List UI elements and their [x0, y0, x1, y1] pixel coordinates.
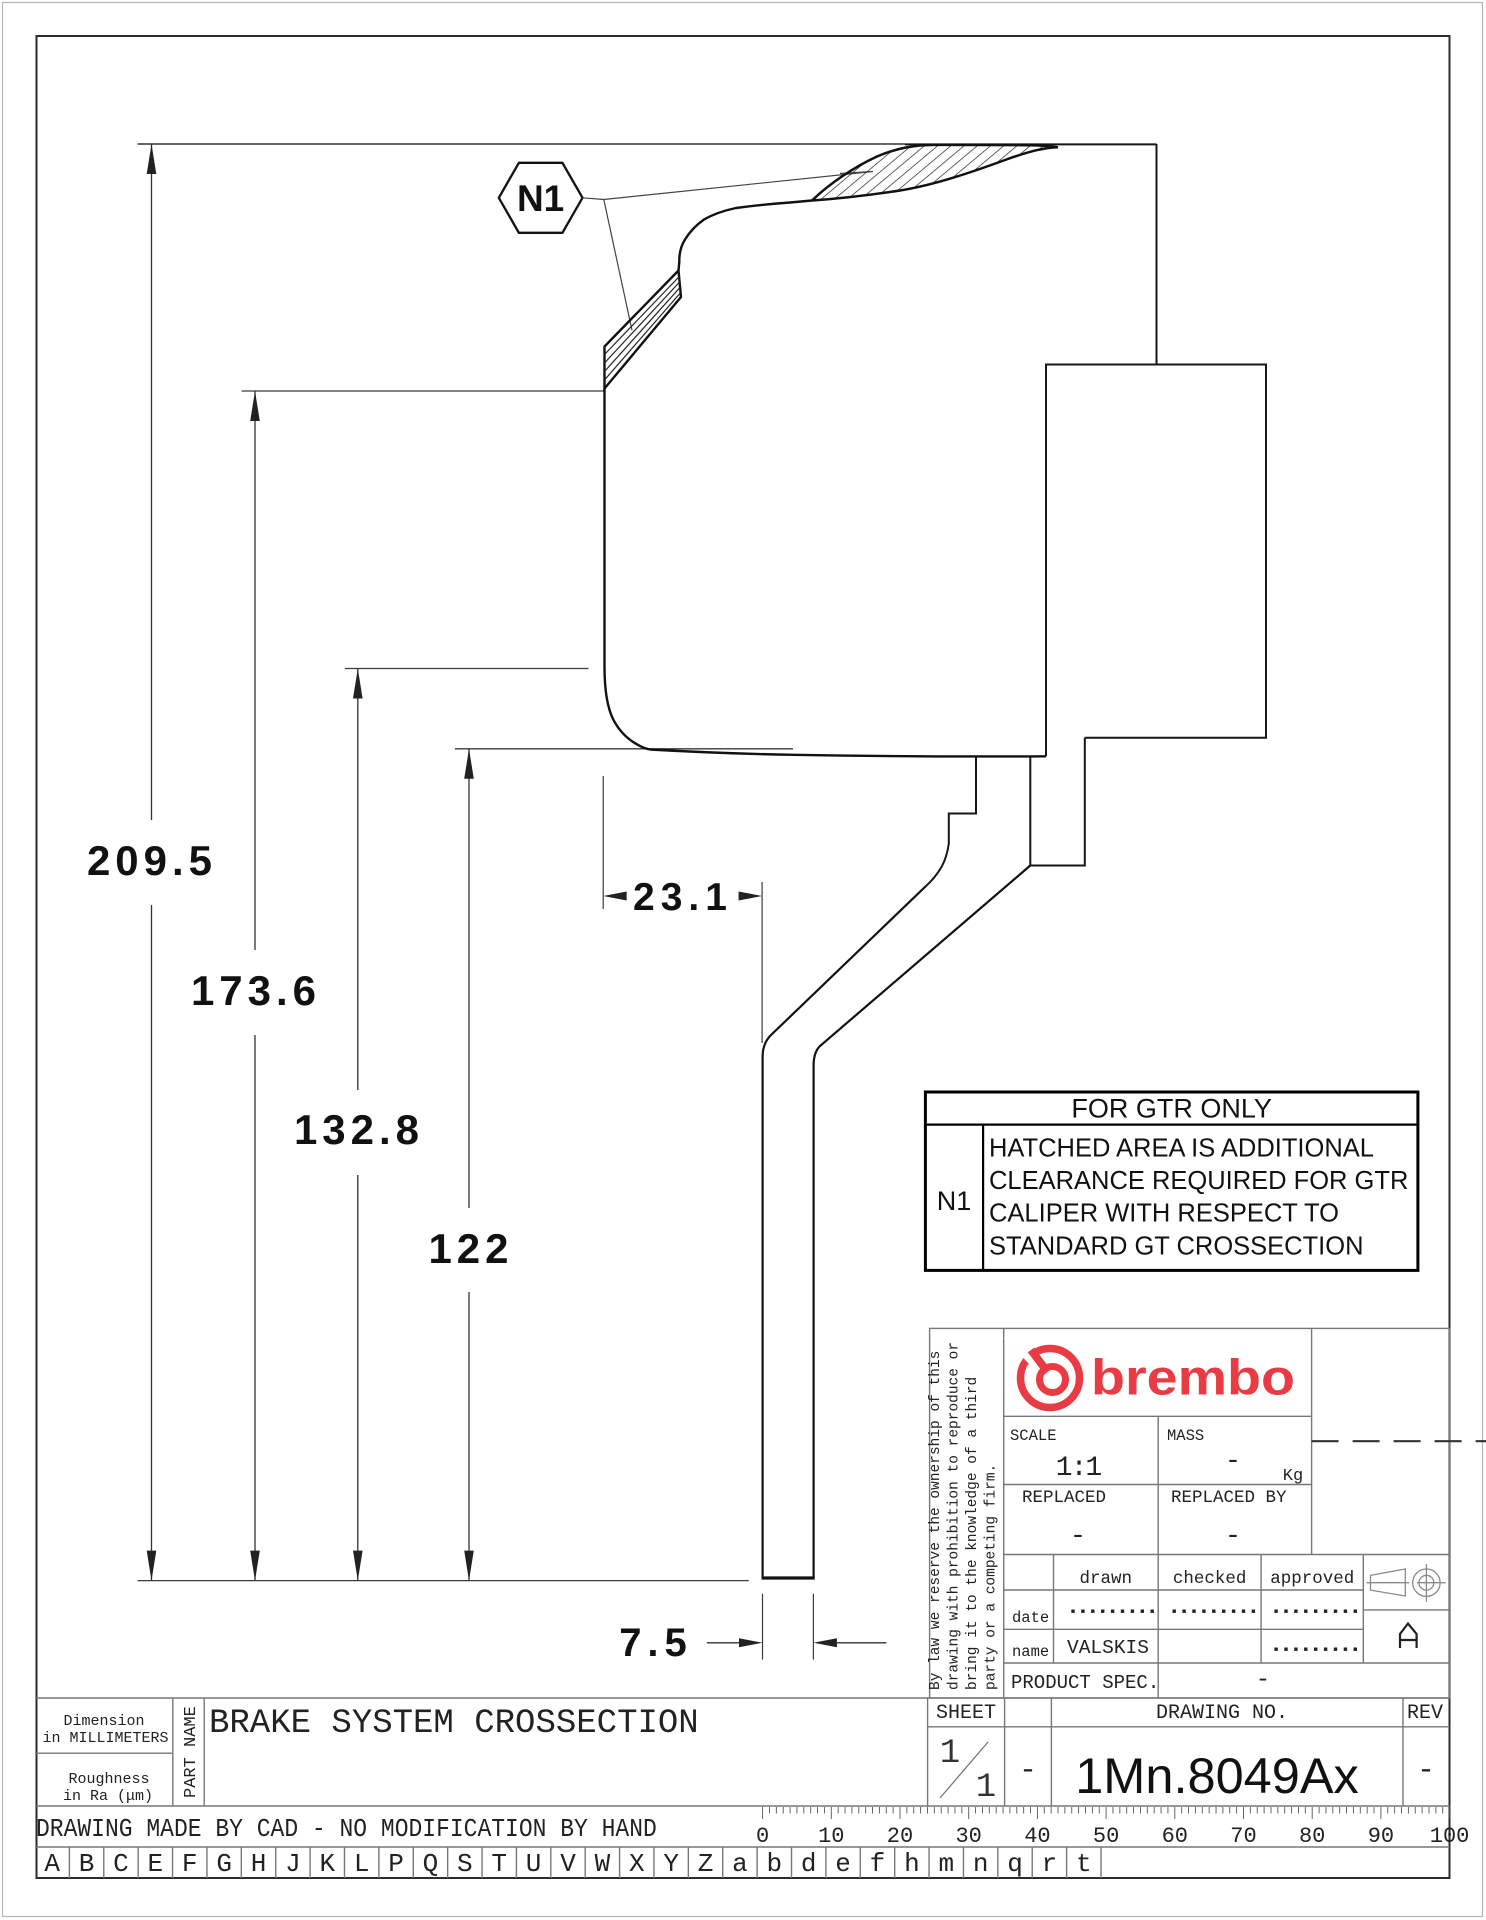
svg-text:d: d: [801, 1849, 817, 1879]
svg-text:STANDARD GT CROSSECTION: STANDARD GT CROSSECTION: [989, 1232, 1364, 1260]
svg-text:H: H: [251, 1849, 267, 1879]
svg-text:-: -: [1417, 1754, 1435, 1788]
svg-text:1Mn.8049Ax: 1Mn.8049Ax: [1075, 1747, 1359, 1804]
svg-text:VALSKIS: VALSKIS: [1067, 1637, 1149, 1659]
svg-text:PART NAME: PART NAME: [182, 1706, 201, 1798]
svg-text:173.6: 173.6: [191, 967, 321, 1014]
svg-text:date: date: [1012, 1609, 1049, 1627]
svg-text:e: e: [835, 1849, 851, 1879]
svg-text:S: S: [457, 1849, 473, 1879]
svg-text:bring it to the knowledge of a: bring it to the knowledge of a third: [965, 1377, 981, 1690]
svg-text:T: T: [491, 1849, 507, 1879]
svg-text:MASS: MASS: [1167, 1427, 1204, 1445]
svg-text:h: h: [904, 1849, 920, 1879]
svg-text:1: 1: [976, 1769, 996, 1807]
svg-text:132.8: 132.8: [294, 1106, 424, 1153]
svg-text:V: V: [560, 1849, 576, 1879]
svg-text:FOR GTR ONLY: FOR GTR ONLY: [1071, 1094, 1272, 1124]
svg-text:A: A: [44, 1849, 60, 1879]
svg-text:30: 30: [955, 1824, 981, 1849]
svg-text:a: a: [732, 1849, 748, 1879]
svg-text:40: 40: [1024, 1824, 1050, 1849]
svg-text:1: 1: [940, 1735, 960, 1773]
svg-text:REPLACED: REPLACED: [1022, 1488, 1106, 1508]
svg-text:Kg: Kg: [1283, 1467, 1303, 1486]
svg-text:approved: approved: [1270, 1569, 1354, 1589]
svg-text:b: b: [767, 1849, 783, 1879]
svg-text:DRAWING NO.: DRAWING NO.: [1156, 1702, 1288, 1725]
svg-text:-: -: [1256, 1667, 1270, 1694]
svg-text:F: F: [182, 1849, 198, 1879]
svg-text:q: q: [1007, 1849, 1023, 1879]
svg-text:20: 20: [887, 1824, 913, 1849]
svg-text:r: r: [1042, 1849, 1058, 1879]
svg-text:HATCHED AREA IS ADDITIONAL: HATCHED AREA IS ADDITIONAL: [989, 1135, 1374, 1163]
svg-text:drawn: drawn: [1080, 1569, 1133, 1589]
svg-text:in Ra (μm): in Ra (μm): [63, 1788, 153, 1805]
svg-text:REPLACED BY: REPLACED BY: [1171, 1488, 1287, 1508]
svg-text:B: B: [79, 1849, 95, 1879]
svg-text:X: X: [629, 1849, 645, 1879]
svg-text:Z: Z: [698, 1849, 714, 1879]
svg-text:209.5: 209.5: [87, 837, 217, 884]
svg-text:P: P: [388, 1849, 404, 1879]
svg-text:t: t: [1076, 1849, 1092, 1879]
svg-text:SCALE: SCALE: [1010, 1427, 1057, 1445]
svg-text:50: 50: [1093, 1824, 1119, 1849]
svg-text:-: -: [1225, 1522, 1241, 1552]
svg-text:80: 80: [1299, 1824, 1325, 1849]
svg-text:-: -: [1070, 1522, 1086, 1552]
svg-text:m: m: [938, 1849, 954, 1879]
svg-text:checked: checked: [1173, 1569, 1247, 1589]
svg-text:U: U: [526, 1849, 542, 1879]
svg-text:10: 10: [818, 1824, 844, 1849]
svg-text:party or a competing firm.: party or a competing firm.: [984, 1464, 1000, 1690]
svg-text:W: W: [595, 1849, 611, 1879]
svg-text:CALIPER WITH RESPECT TO: CALIPER WITH RESPECT TO: [989, 1200, 1339, 1228]
svg-text:122: 122: [428, 1225, 513, 1272]
svg-text:60: 60: [1162, 1824, 1188, 1849]
svg-text:G: G: [216, 1849, 232, 1879]
svg-text:CLEARANCE REQUIRED FOR GTR: CLEARANCE REQUIRED FOR GTR: [989, 1167, 1408, 1195]
svg-text:E: E: [148, 1849, 164, 1879]
svg-text:Y: Y: [663, 1849, 679, 1879]
svg-text:Q: Q: [423, 1849, 439, 1879]
svg-text:23.1: 23.1: [633, 876, 733, 919]
svg-text:N1: N1: [937, 1186, 972, 1216]
svg-text:By law we reserve the ownershi: By law we reserve the ownership of this: [928, 1351, 944, 1690]
svg-text:f: f: [870, 1849, 886, 1879]
svg-text:n: n: [973, 1849, 989, 1879]
svg-text:Roughness: Roughness: [68, 1771, 149, 1788]
svg-text:L: L: [354, 1849, 370, 1879]
svg-text:name: name: [1012, 1643, 1049, 1661]
svg-text:100: 100: [1430, 1824, 1470, 1849]
svg-text:-: -: [1019, 1754, 1037, 1788]
svg-text:REV: REV: [1407, 1702, 1443, 1725]
svg-text:PRODUCT SPEC.: PRODUCT SPEC.: [1011, 1672, 1159, 1694]
svg-text:SHEET: SHEET: [936, 1702, 996, 1725]
svg-text:C: C: [113, 1849, 129, 1879]
svg-text:in MILLIMETERS: in MILLIMETERS: [42, 1730, 168, 1747]
svg-text:90: 90: [1368, 1824, 1394, 1849]
svg-text:DRAWING MADE BY CAD - NO MODIF: DRAWING MADE BY CAD - NO MODIFICATION BY…: [36, 1816, 657, 1845]
svg-text:Dimension: Dimension: [63, 1713, 144, 1730]
svg-text:K: K: [319, 1849, 335, 1879]
svg-text:brembo: brembo: [1091, 1350, 1295, 1406]
svg-text:-: -: [1225, 1447, 1241, 1477]
svg-text:N1: N1: [517, 178, 564, 219]
svg-text:BRAKE SYSTEM CROSSECTION: BRAKE SYSTEM CROSSECTION: [209, 1705, 699, 1743]
svg-text:70: 70: [1230, 1824, 1256, 1849]
svg-text:1:1: 1:1: [1056, 1453, 1102, 1484]
svg-text:0: 0: [756, 1824, 769, 1849]
svg-text:J: J: [285, 1849, 301, 1879]
svg-text:drawing with prohibition to re: drawing with prohibition to reproduce or: [947, 1342, 963, 1690]
svg-text:7.5: 7.5: [619, 1621, 693, 1665]
